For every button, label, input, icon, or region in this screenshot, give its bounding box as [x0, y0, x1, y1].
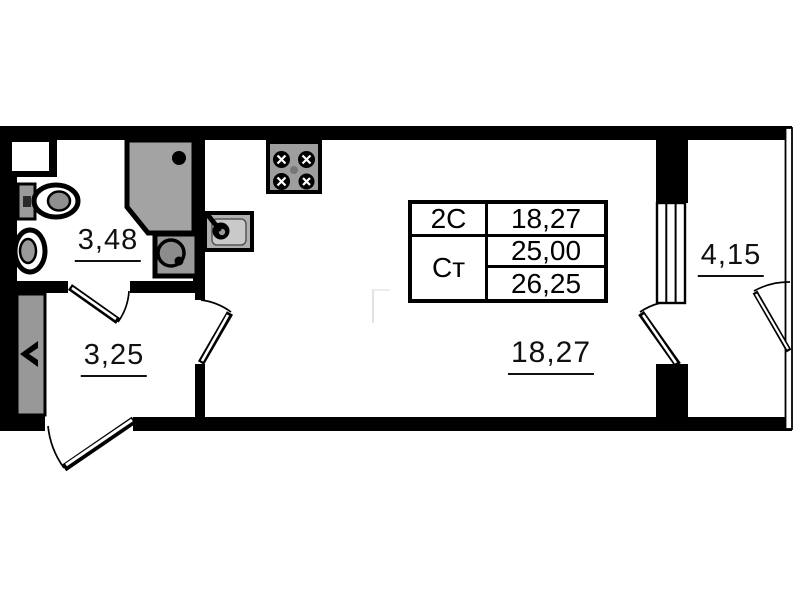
- entrance-door: [48, 420, 134, 468]
- wall-bathroom-bottom-right: [130, 281, 205, 293]
- wall-corner-shaft-void: [12, 142, 49, 171]
- wardrobe: [17, 294, 45, 415]
- hall-door: [201, 300, 231, 363]
- wall-pier-bottom-right: [656, 364, 688, 431]
- shower-cabin-icon: [127, 140, 194, 233]
- faint-print-artifact: [372, 289, 390, 323]
- wall-hall-bottom: [0, 415, 45, 431]
- window: [657, 203, 685, 303]
- balcony-glazing: [786, 128, 793, 429]
- washing-machine-icon: [155, 234, 197, 276]
- wall-hall-stub: [195, 293, 205, 300]
- toilet-icon: [18, 184, 78, 219]
- room-label-balcony: 4,15: [698, 241, 764, 277]
- studio-label: Ст: [412, 237, 488, 299]
- bathroom-door: [70, 287, 129, 322]
- wall-hall-right: [195, 364, 205, 420]
- wall-bottom: [133, 417, 792, 431]
- total-area-value: 26,25: [488, 268, 604, 299]
- balcony-sash: [754, 282, 790, 351]
- living-area-value: 25,00: [488, 237, 604, 268]
- kitchen-sink-icon: [205, 213, 252, 250]
- apartment-type-label: 2С: [412, 204, 488, 237]
- wall-bathroom-bottom-left: [0, 281, 68, 293]
- room-label-hallway: 3,25: [81, 341, 147, 377]
- room-label-living-room: 18,27: [508, 338, 594, 375]
- washbasin-icon: [15, 230, 45, 272]
- wall-pier-top-right: [656, 126, 688, 203]
- apartment-info-table: 2С 18,27 Ст 25,00 26,25: [408, 200, 608, 303]
- apartment-type-area: 18,27: [488, 204, 604, 237]
- floor-plan-drawing: [0, 0, 799, 600]
- floor-plan: 3,48 3,25 18,27 4,15 2С 18,27 Ст 25,00 2…: [0, 0, 799, 600]
- balcony-door: [640, 303, 678, 365]
- stove-icon: [268, 142, 320, 192]
- room-label-bathroom: 3,48: [75, 226, 141, 262]
